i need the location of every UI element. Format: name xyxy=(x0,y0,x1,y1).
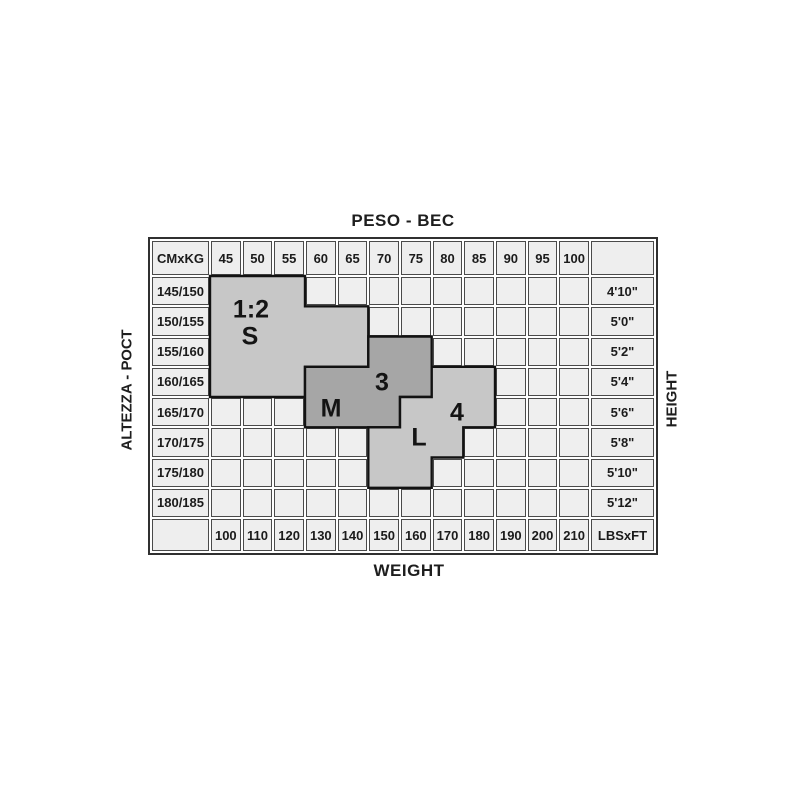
data-cell xyxy=(243,277,273,305)
data-cell xyxy=(211,277,241,305)
data-cell xyxy=(559,398,589,426)
data-cell xyxy=(528,398,558,426)
data-cell xyxy=(274,459,304,487)
lbs-footer-cell: 180 xyxy=(464,519,494,551)
data-cell xyxy=(433,398,463,426)
data-cell xyxy=(464,338,494,366)
lbs-footer-cell: 100 xyxy=(211,519,241,551)
data-cell xyxy=(496,398,526,426)
data-cell xyxy=(369,459,399,487)
data-cell xyxy=(338,307,368,335)
data-cell xyxy=(496,459,526,487)
data-cell xyxy=(528,489,558,517)
data-cell xyxy=(306,307,336,335)
data-cell xyxy=(369,368,399,396)
kg-header-cell: 85 xyxy=(464,241,494,275)
data-cell xyxy=(306,338,336,366)
size-chart: PESO - ВЕС CMxKG455055606570758085909510… xyxy=(0,0,800,800)
data-cell xyxy=(464,459,494,487)
data-cell xyxy=(401,368,431,396)
data-cell xyxy=(338,398,368,426)
data-cell xyxy=(433,459,463,487)
data-cell xyxy=(338,459,368,487)
data-cell xyxy=(433,368,463,396)
data-cell xyxy=(559,428,589,456)
data-cell xyxy=(464,277,494,305)
data-cell xyxy=(559,489,589,517)
size-table: CMxKG4550556065707580859095100145/1504'1… xyxy=(148,237,658,555)
data-cell xyxy=(433,428,463,456)
lbs-footer-cell: 140 xyxy=(338,519,368,551)
data-cell xyxy=(401,338,431,366)
data-cell xyxy=(496,338,526,366)
data-cell xyxy=(243,307,273,335)
data-cell xyxy=(211,368,241,396)
data-cell xyxy=(306,459,336,487)
data-cell xyxy=(559,368,589,396)
data-cell xyxy=(496,368,526,396)
kg-header-cell: 45 xyxy=(211,241,241,275)
corner-kg-cm-cell: CMxKG xyxy=(152,241,209,275)
cm-row-label: 170/175 xyxy=(152,428,209,456)
data-cell xyxy=(559,307,589,335)
data-cell xyxy=(338,368,368,396)
cm-row-label: 145/150 xyxy=(152,277,209,305)
data-cell xyxy=(496,307,526,335)
data-cell xyxy=(369,338,399,366)
data-cell xyxy=(464,489,494,517)
data-cell xyxy=(306,368,336,396)
data-cell xyxy=(433,307,463,335)
header-empty-cell xyxy=(591,241,654,275)
data-cell xyxy=(496,489,526,517)
cm-row-label: 175/180 xyxy=(152,459,209,487)
data-cell xyxy=(211,428,241,456)
data-cell xyxy=(464,428,494,456)
altezza-axis-label: ALTEZZA - РОСТ xyxy=(119,329,136,450)
data-cell xyxy=(274,489,304,517)
data-cell xyxy=(274,338,304,366)
data-cell xyxy=(401,307,431,335)
data-cell xyxy=(401,489,431,517)
size-grid: CMxKG4550556065707580859095100145/1504'1… xyxy=(152,241,654,551)
data-cell xyxy=(433,489,463,517)
data-cell xyxy=(433,277,463,305)
data-cell xyxy=(211,307,241,335)
kg-header-cell: 95 xyxy=(528,241,558,275)
data-cell xyxy=(369,489,399,517)
lbs-footer-cell: 160 xyxy=(401,519,431,551)
data-cell xyxy=(464,368,494,396)
lbs-footer-cell: 200 xyxy=(528,519,558,551)
data-cell xyxy=(401,277,431,305)
data-cell xyxy=(211,338,241,366)
data-cell xyxy=(528,368,558,396)
data-cell xyxy=(464,398,494,426)
data-cell xyxy=(369,428,399,456)
data-cell xyxy=(559,277,589,305)
cm-row-label: 160/165 xyxy=(152,368,209,396)
data-cell xyxy=(306,428,336,456)
data-cell xyxy=(338,277,368,305)
kg-header-cell: 65 xyxy=(338,241,368,275)
data-cell xyxy=(211,398,241,426)
ft-row-label: 5'12" xyxy=(591,489,654,517)
ft-row-label: 5'10" xyxy=(591,459,654,487)
lbs-footer-cell: 150 xyxy=(369,519,399,551)
ft-row-label: 5'4" xyxy=(591,368,654,396)
data-cell xyxy=(528,338,558,366)
data-cell xyxy=(243,398,273,426)
kg-header-cell: 80 xyxy=(433,241,463,275)
kg-header-cell: 100 xyxy=(559,241,589,275)
kg-header-cell: 75 xyxy=(401,241,431,275)
data-cell xyxy=(274,307,304,335)
ft-row-label: 5'8" xyxy=(591,428,654,456)
data-cell xyxy=(211,459,241,487)
cm-row-label: 150/155 xyxy=(152,307,209,335)
height-axis-label: HEIGHT xyxy=(664,371,681,428)
footer-empty-cell xyxy=(152,519,209,551)
kg-header-cell: 70 xyxy=(369,241,399,275)
lbs-footer-cell: 130 xyxy=(306,519,336,551)
data-cell xyxy=(496,428,526,456)
data-cell xyxy=(243,428,273,456)
kg-header-cell: 50 xyxy=(243,241,273,275)
data-cell xyxy=(369,398,399,426)
data-cell xyxy=(243,459,273,487)
kg-header-cell: 60 xyxy=(306,241,336,275)
lbs-footer-cell: 190 xyxy=(496,519,526,551)
weight-axis-label: WEIGHT xyxy=(0,561,800,581)
data-cell xyxy=(559,459,589,487)
data-cell xyxy=(433,338,463,366)
data-cell xyxy=(528,277,558,305)
data-cell xyxy=(528,307,558,335)
data-cell xyxy=(243,368,273,396)
ft-row-label: 5'6" xyxy=(591,398,654,426)
data-cell xyxy=(306,277,336,305)
data-cell xyxy=(369,277,399,305)
data-cell xyxy=(338,489,368,517)
data-cell xyxy=(496,277,526,305)
peso-axis-label: PESO - ВЕС xyxy=(0,211,800,231)
data-cell xyxy=(274,398,304,426)
data-cell xyxy=(369,307,399,335)
data-cell xyxy=(243,338,273,366)
ft-row-label: 5'0" xyxy=(591,307,654,335)
data-cell xyxy=(528,428,558,456)
data-cell xyxy=(401,398,431,426)
lbs-footer-cell: 120 xyxy=(274,519,304,551)
data-cell xyxy=(306,398,336,426)
cm-row-label: 180/185 xyxy=(152,489,209,517)
kg-header-cell: 90 xyxy=(496,241,526,275)
data-cell xyxy=(338,338,368,366)
data-cell xyxy=(528,459,558,487)
data-cell xyxy=(274,368,304,396)
data-cell xyxy=(464,307,494,335)
data-cell xyxy=(559,338,589,366)
data-cell xyxy=(338,428,368,456)
data-cell xyxy=(211,489,241,517)
lbs-footer-cell: 170 xyxy=(433,519,463,551)
lbs-footer-cell: 210 xyxy=(559,519,589,551)
ft-row-label: 4'10" xyxy=(591,277,654,305)
ft-row-label: 5'2" xyxy=(591,338,654,366)
data-cell xyxy=(401,428,431,456)
cm-row-label: 165/170 xyxy=(152,398,209,426)
data-cell xyxy=(306,489,336,517)
data-cell xyxy=(274,277,304,305)
data-cell xyxy=(243,489,273,517)
lbs-footer-cell: 110 xyxy=(243,519,273,551)
cm-row-label: 155/160 xyxy=(152,338,209,366)
corner-lbs-ft-cell: LBSxFT xyxy=(591,519,654,551)
data-cell xyxy=(274,428,304,456)
data-cell xyxy=(401,459,431,487)
kg-header-cell: 55 xyxy=(274,241,304,275)
